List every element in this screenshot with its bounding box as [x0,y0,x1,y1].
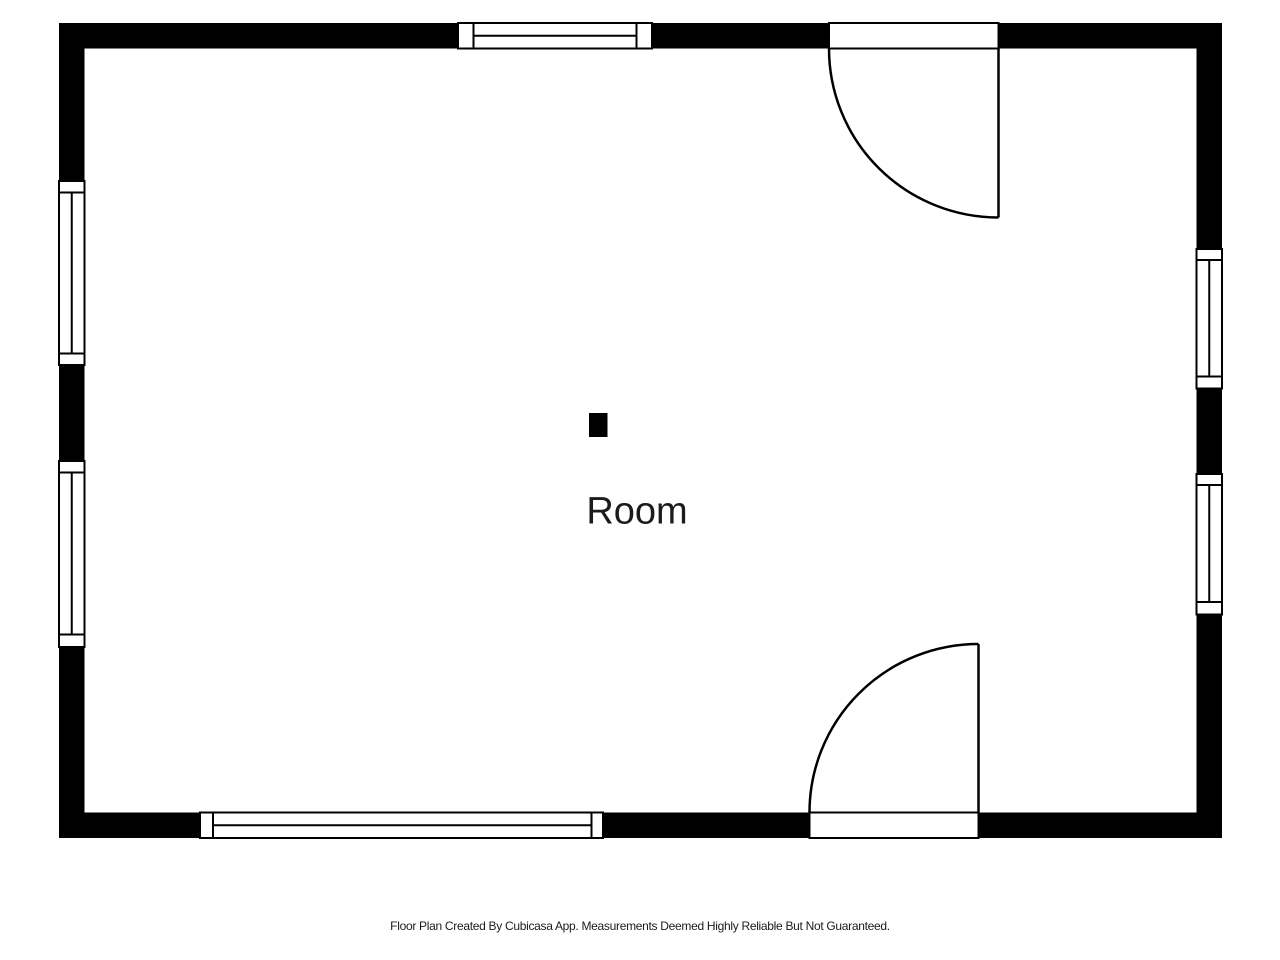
room-label: Room [586,491,687,534]
floor-plan-drawing [0,0,1280,960]
window-top [458,23,652,49]
door-top-swing-arc [829,49,999,218]
outer-walls [59,23,1222,838]
door-top-threshold [829,23,999,49]
door-top [829,23,999,218]
floor-plan-canvas: Room Floor Plan Created By Cubicasa App.… [0,0,1280,960]
door-bottom-threshold [810,813,979,839]
window-right-upper [1197,249,1223,389]
wall-left [59,23,85,838]
door-bottom-swing-arc [810,644,979,813]
window-right-lower [1197,474,1223,615]
window-left-upper [59,181,85,365]
window-bottom [200,813,603,839]
wall-right [1197,23,1223,838]
door-bottom [810,644,979,838]
column-marker [589,413,608,437]
footer-disclaimer: Floor Plan Created By Cubicasa App. Meas… [0,919,1280,933]
window-left-lower [59,461,85,647]
